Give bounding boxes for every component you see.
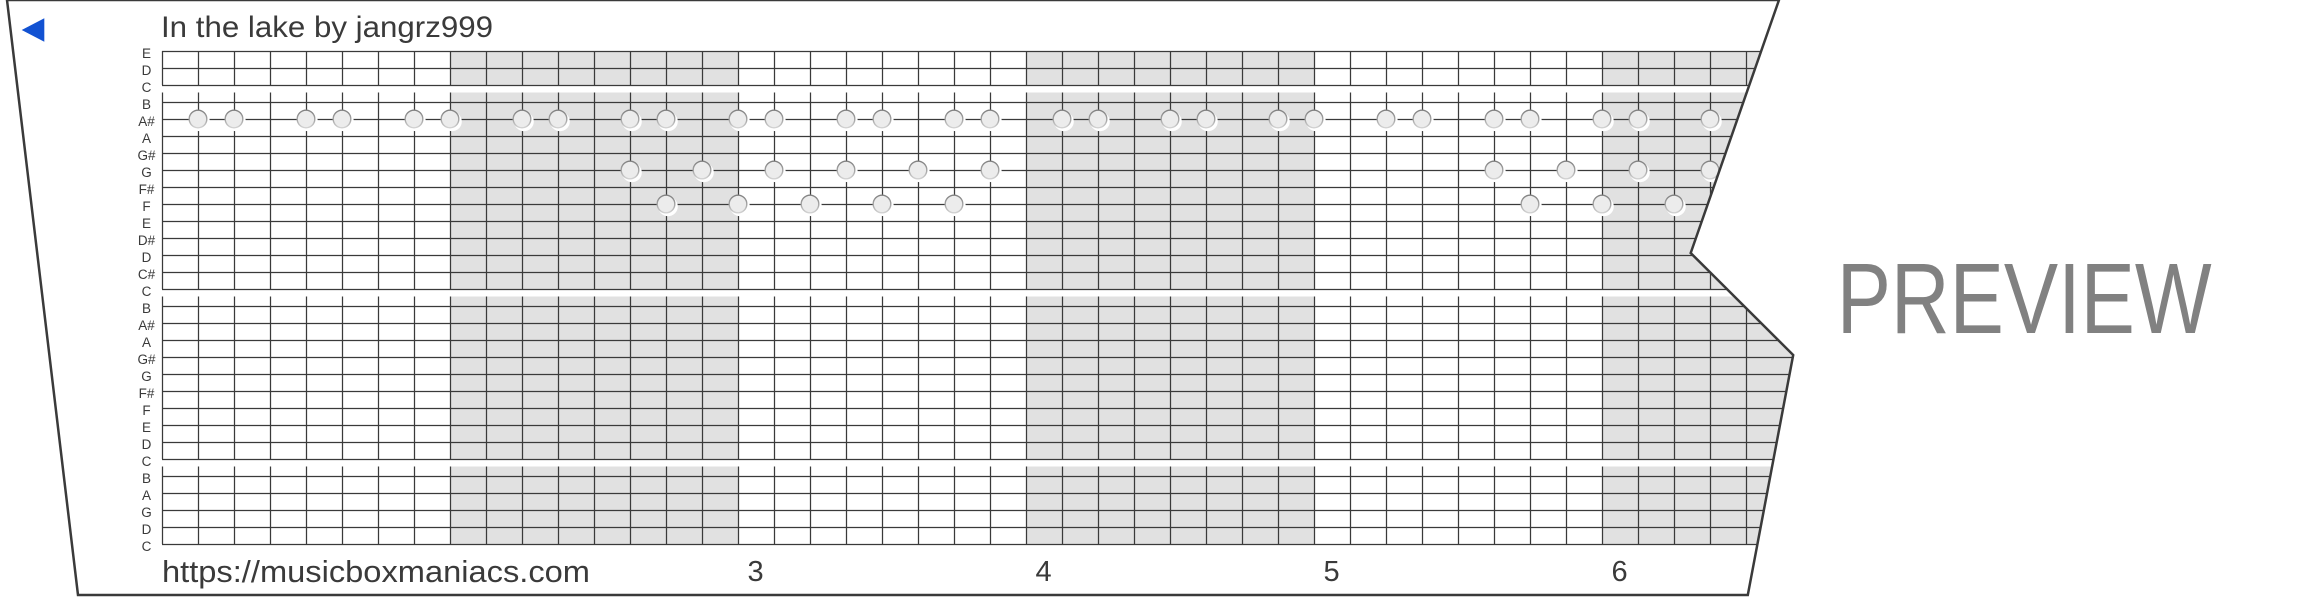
svg-text:PREVIEW: PREVIEW — [1837, 244, 2212, 355]
svg-text:F#: F# — [139, 182, 155, 197]
svg-text:G#: G# — [137, 352, 156, 367]
svg-text:A#: A# — [138, 318, 155, 333]
svg-text:D: D — [142, 63, 152, 78]
svg-text:E: E — [142, 216, 151, 231]
svg-text:D#: D# — [138, 233, 156, 248]
svg-text:E: E — [142, 420, 151, 435]
svg-text:C: C — [142, 80, 152, 95]
svg-text:C: C — [142, 454, 152, 469]
svg-text:G: G — [141, 369, 152, 384]
svg-text:D: D — [142, 522, 152, 537]
svg-text:A: A — [142, 488, 151, 503]
svg-text:D: D — [142, 437, 152, 452]
svg-text:B: B — [142, 97, 151, 112]
svg-text:E: E — [142, 46, 151, 61]
svg-text:A: A — [142, 131, 151, 146]
svg-text:G: G — [141, 505, 152, 520]
svg-text:F: F — [142, 199, 150, 214]
svg-text:G#: G# — [137, 148, 156, 163]
svg-text:C: C — [142, 284, 152, 299]
svg-text:C#: C# — [138, 267, 156, 282]
svg-text:4: 4 — [1036, 556, 1052, 588]
svg-text:G: G — [141, 165, 152, 180]
svg-text:https://musicboxmaniacs.com: https://musicboxmaniacs.com — [162, 554, 590, 589]
svg-text:In the lake by jangrz999: In the lake by jangrz999 — [161, 11, 493, 44]
svg-text:5: 5 — [1324, 556, 1340, 588]
svg-text:B: B — [142, 301, 151, 316]
svg-text:F#: F# — [139, 386, 155, 401]
svg-text:3: 3 — [748, 556, 764, 588]
svg-text:A: A — [142, 335, 151, 350]
svg-text:F: F — [142, 403, 150, 418]
svg-text:D: D — [142, 250, 152, 265]
svg-text:6: 6 — [1612, 556, 1628, 588]
svg-text:C: C — [142, 539, 152, 554]
svg-text:A#: A# — [138, 114, 155, 129]
svg-text:B: B — [142, 471, 151, 486]
